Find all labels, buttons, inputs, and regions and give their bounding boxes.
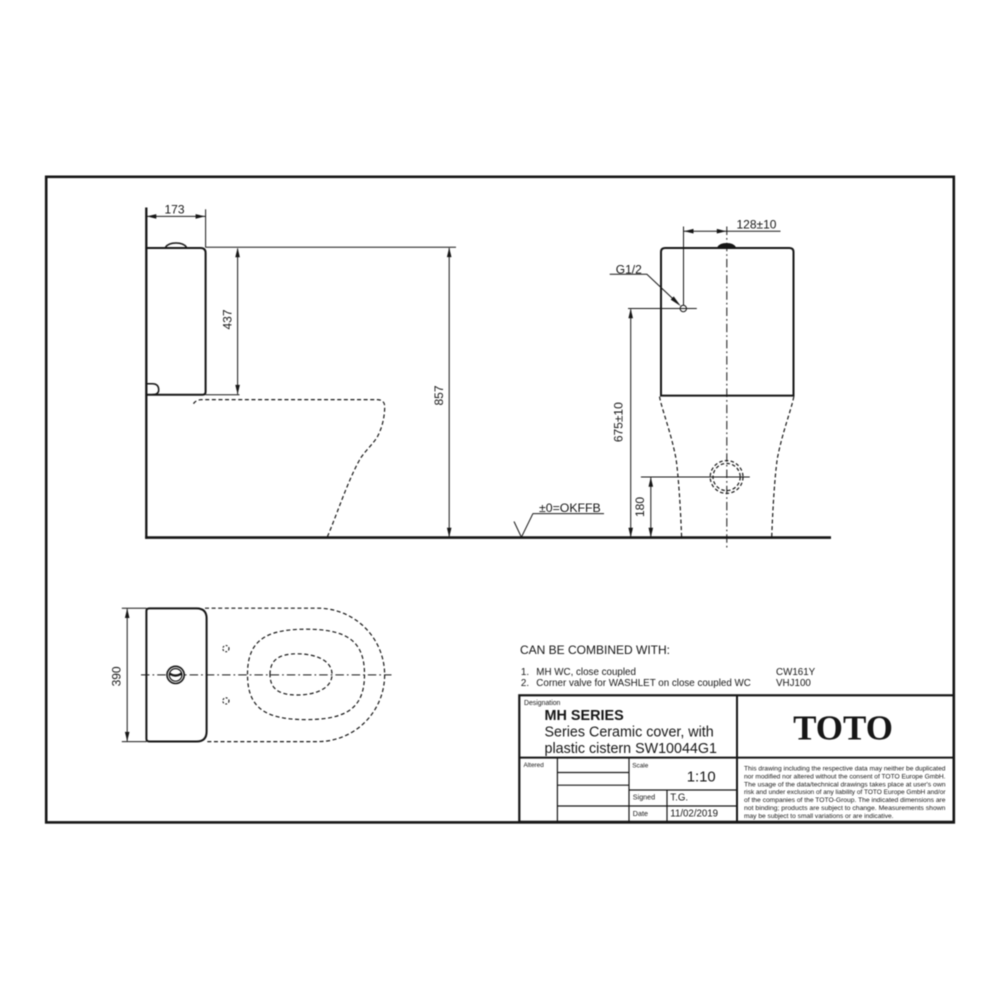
- svg-text:of the companies of the TOTO-G: of the companies of the TOTO-Group. The …: [744, 797, 946, 804]
- svg-text:may be subject to small variat: may be subject to small variations or ar…: [744, 813, 894, 820]
- svg-text:2.: 2.: [521, 678, 529, 689]
- svg-text:not binding; products are subj: not binding; products are subject to cha…: [744, 805, 946, 812]
- svg-text:plastic cistern SW10044G1: plastic cistern SW10044G1: [545, 741, 717, 757]
- svg-text:TOTO: TOTO: [793, 708, 893, 747]
- svg-text:11/02/2019: 11/02/2019: [670, 809, 718, 820]
- svg-text:CW161Y: CW161Y: [776, 667, 816, 678]
- svg-text:Altered: Altered: [524, 762, 545, 769]
- svg-text:Series Ceramic cover, with: Series Ceramic cover, with: [545, 725, 714, 741]
- svg-text:CAN BE COMBINED WITH:: CAN BE COMBINED WITH:: [520, 643, 670, 657]
- svg-text:Scale: Scale: [632, 762, 648, 769]
- svg-text:390: 390: [110, 666, 124, 686]
- svg-text:nor modified nor altered witho: nor modified nor altered without the con…: [744, 773, 946, 780]
- svg-text:G1/2: G1/2: [616, 262, 642, 276]
- svg-text:T.G.: T.G.: [670, 792, 688, 803]
- svg-text:The usage of the data/technica: The usage of the data/technical drawings…: [744, 781, 946, 788]
- svg-text:Date: Date: [633, 809, 648, 818]
- svg-text:VHJ100: VHJ100: [776, 678, 811, 689]
- svg-text:857: 857: [432, 385, 446, 405]
- svg-text:1:10: 1:10: [687, 770, 716, 786]
- svg-text:1.: 1.: [521, 667, 529, 678]
- svg-text:675±10: 675±10: [612, 402, 626, 442]
- svg-text:risk and under exclusion of an: risk and under exclusion of any liabilit…: [744, 789, 946, 796]
- svg-text:437: 437: [221, 309, 235, 329]
- svg-text:±0=OKFFB: ±0=OKFFB: [539, 501, 601, 515]
- svg-text:MH SERIES: MH SERIES: [545, 708, 625, 724]
- svg-text:MH WC, close coupled: MH WC, close coupled: [536, 667, 636, 678]
- svg-text:173: 173: [164, 203, 184, 217]
- svg-text:Designation: Designation: [524, 700, 561, 707]
- svg-text:This drawing including the res: This drawing including the respective da…: [744, 766, 946, 773]
- svg-text:128±10: 128±10: [737, 218, 777, 232]
- svg-text:Signed: Signed: [633, 793, 655, 802]
- svg-text:180: 180: [633, 497, 647, 517]
- svg-text:Corner valve for WASHLET on cl: Corner valve for WASHLET on close couple…: [536, 678, 751, 689]
